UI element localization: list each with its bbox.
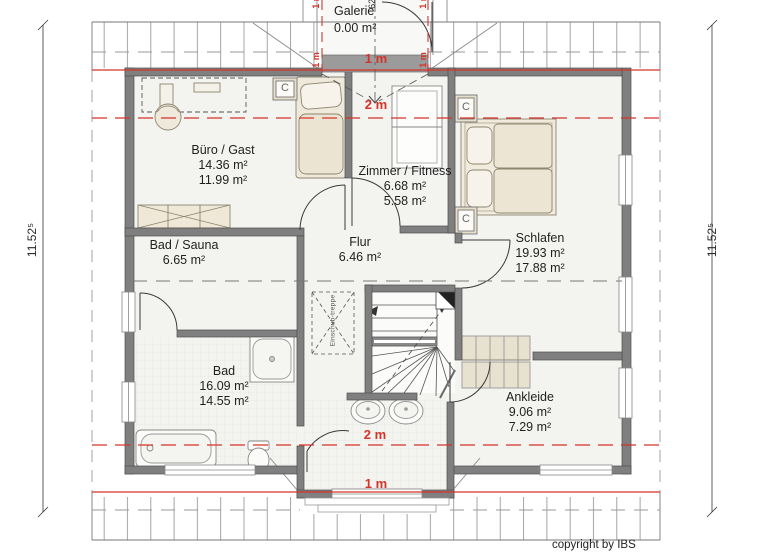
- room-label-bad-sauna: Bad / Sauna 6.65 m²: [134, 238, 234, 268]
- room-label-zimmer-fitness: Zimmer / Fitness 6.68 m² 5.58 m²: [352, 164, 458, 209]
- height-marker-bottom-2m: 2 m: [355, 427, 395, 442]
- copyright-note: copyright by IBS: [552, 539, 722, 551]
- height-marker-gallery-right-1m: 1 m: [418, 47, 428, 73]
- dimension-left-total: 11.52⁵: [25, 210, 39, 270]
- room-label-ankleide: Ankleide 9.06 m² 7.29 m²: [482, 390, 578, 435]
- room-label-bad: Bad 16.09 m² 14.55 m²: [174, 364, 274, 409]
- height-marker-top-2m: 2 m: [356, 97, 396, 112]
- attic-ladder-label: Einschub-treppe: [330, 289, 337, 353]
- floor-plan-page: Büro / Gast 14.36 m² 11.99 m² Galerie 0.…: [0, 0, 768, 560]
- room-label-schlafen: Schlafen 19.93 m² 17.88 m²: [492, 231, 588, 276]
- dimension-right-total: 11.52⁵: [705, 210, 719, 270]
- height-marker-gallery-left-top-1m: 1 m: [311, 0, 321, 14]
- chimney-label-schlafen-bottom: C: [455, 214, 477, 225]
- height-marker-gallery-left-1m: 1 m: [311, 47, 321, 73]
- room-label-buero-gast: Büro / Gast 14.36 m² 11.99 m²: [163, 143, 283, 188]
- chimney-label-buero: C: [273, 83, 297, 94]
- height-marker-gallery-right-top-1m: 1 m: [418, 0, 428, 14]
- chimney-label-schlafen-top: C: [455, 102, 477, 113]
- dimension-gallery-width: 62⁵: [367, 0, 377, 16]
- room-label-flur: Flur 6.46 m²: [310, 235, 410, 265]
- height-marker-bottom-1m: 1 m: [356, 476, 396, 491]
- height-marker-top-1m: 1 m: [356, 51, 396, 66]
